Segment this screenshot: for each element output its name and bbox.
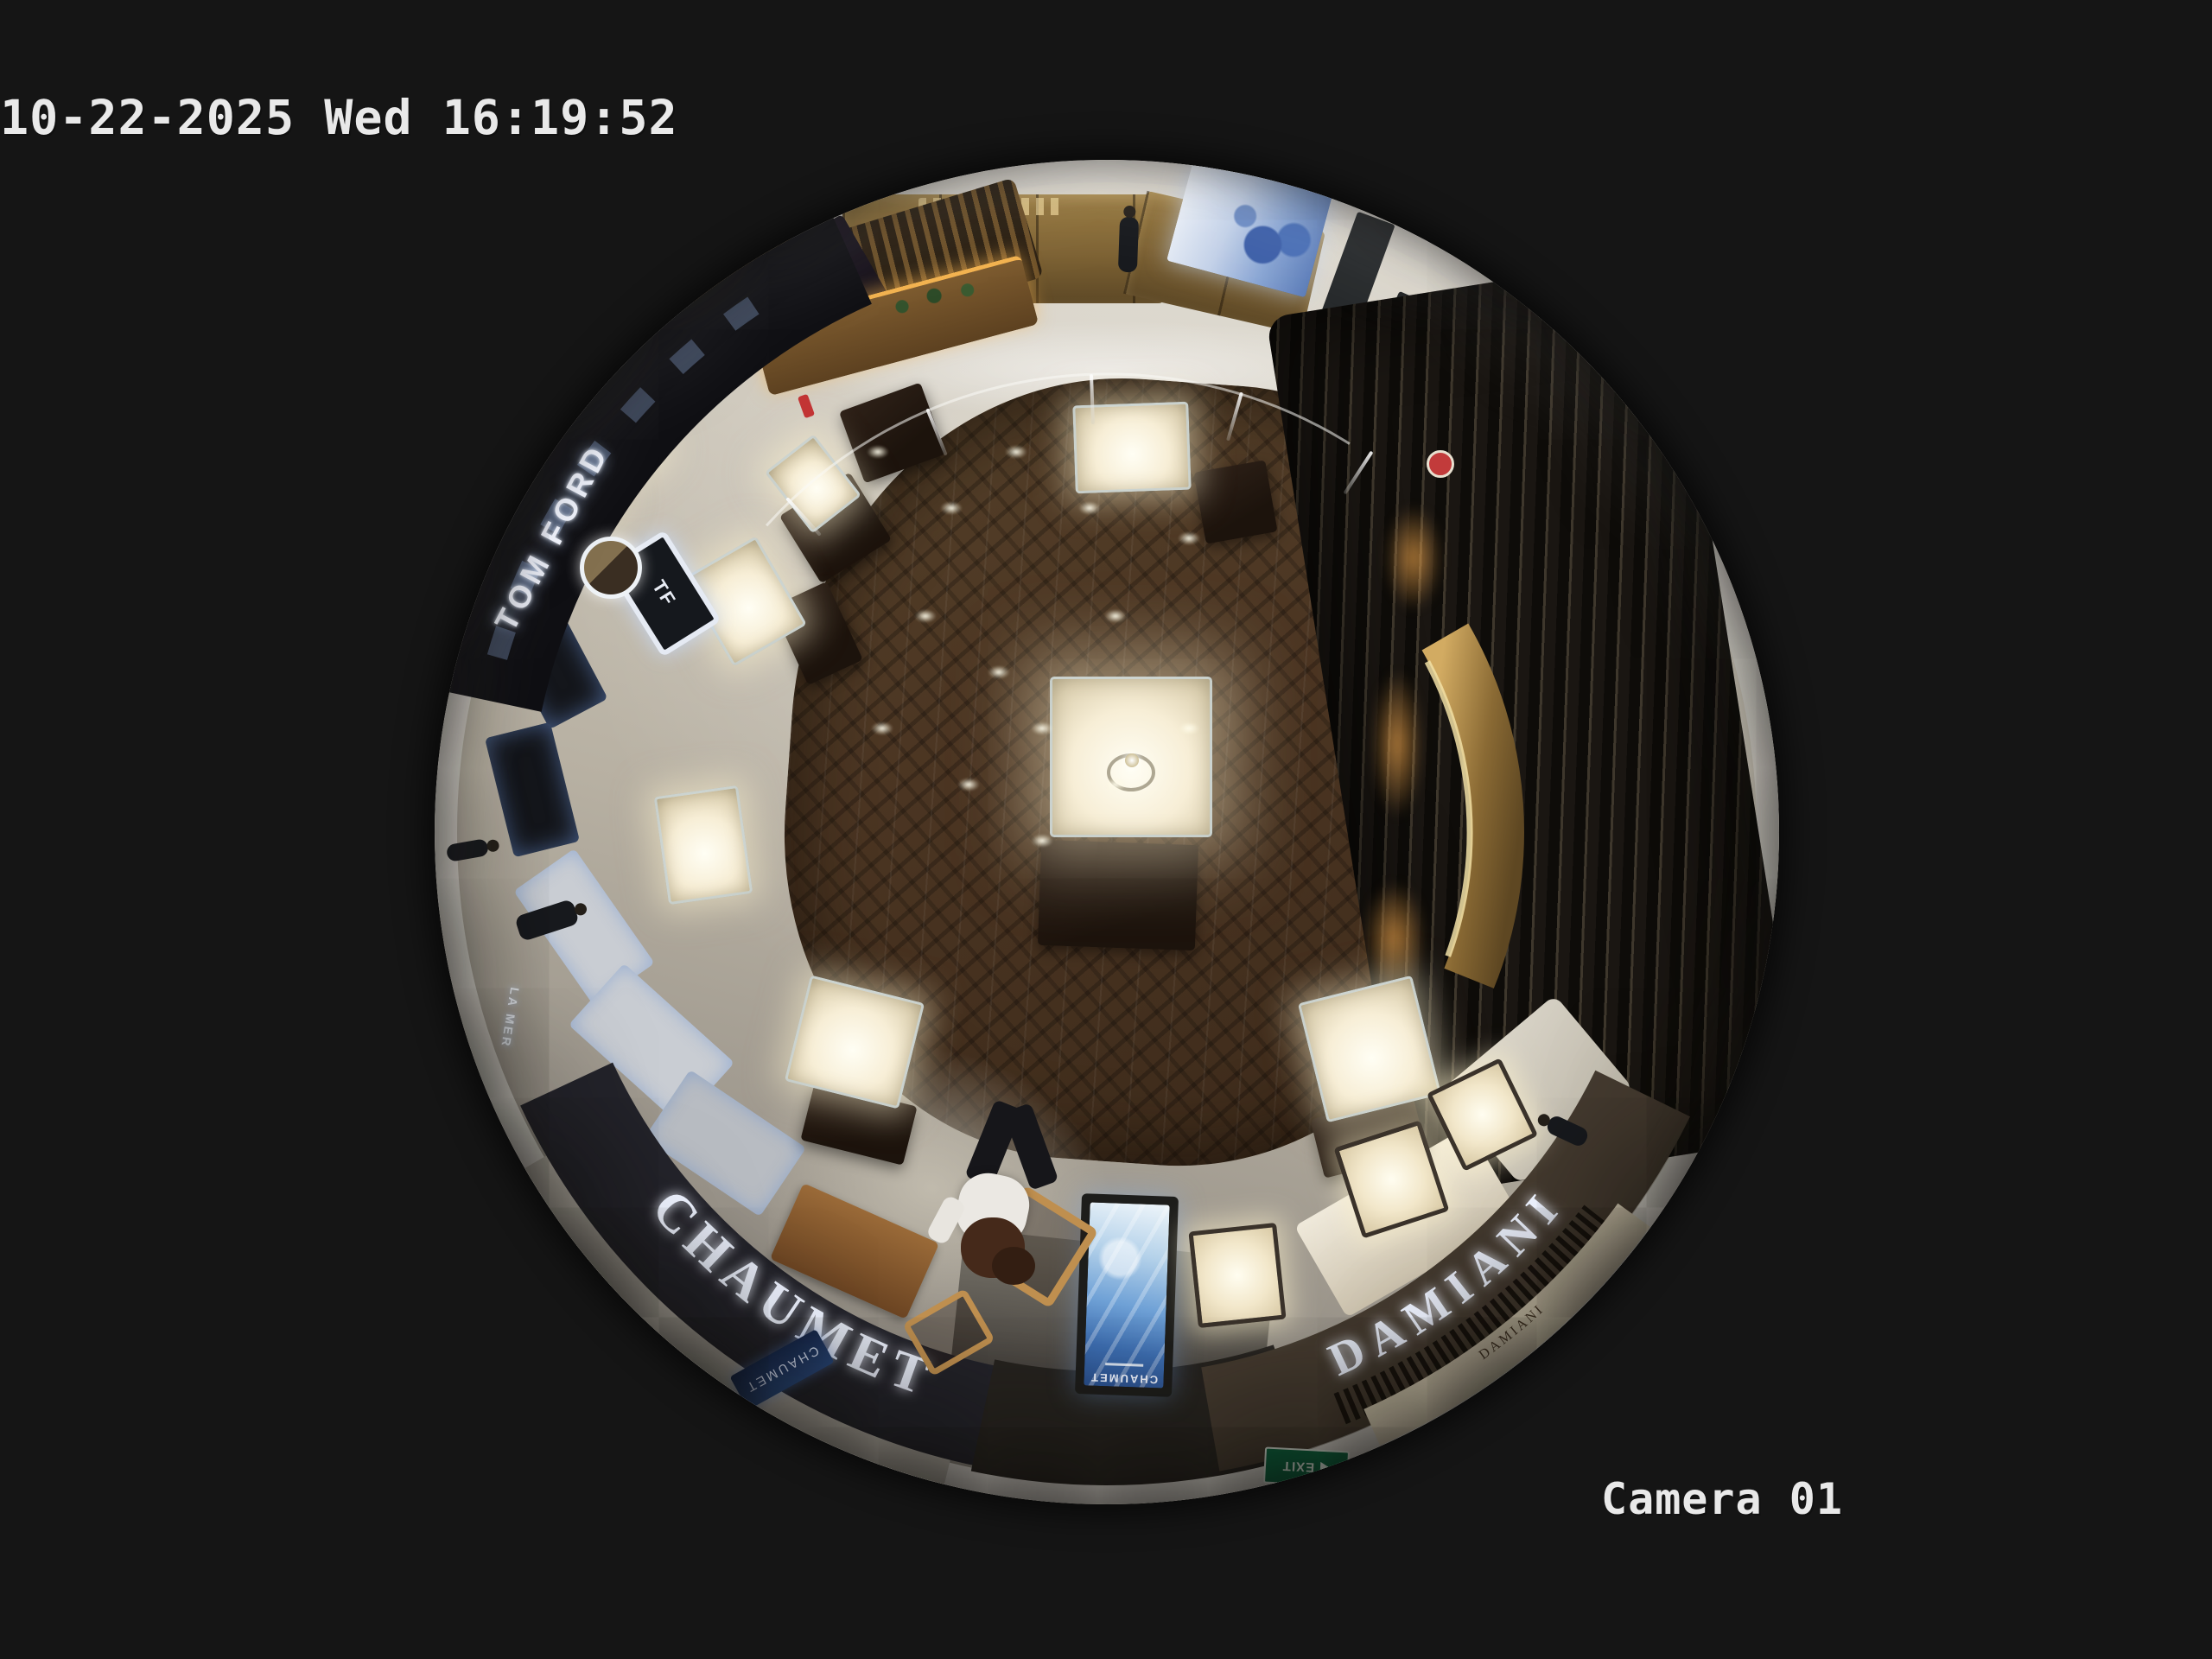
totem-screen (1084, 1202, 1169, 1388)
circular-mirror (580, 537, 642, 599)
jewelry-showcase (1188, 1223, 1286, 1328)
camera-label: Camera 01 (1601, 1474, 1843, 1524)
fisheye-view: CHAUMET DAMIANI DAMIANI TOM FORD TF LA M… (435, 160, 1779, 1504)
exit-arrow-icon (1320, 1462, 1332, 1475)
person-walking-bottom (931, 1102, 1078, 1285)
tf-monogram: TF (647, 576, 680, 611)
exit-label: EXIT (1281, 1459, 1314, 1475)
person-walking-top (1118, 217, 1139, 273)
timestamp-overlay: 10-22-2025 Wed 16:19:52 (0, 90, 678, 145)
digital-totem: CHAUMET (1075, 1193, 1179, 1397)
exit-sign: EXIT (1263, 1446, 1350, 1487)
cctv-frame: CHAUMET DAMIANI DAMIANI TOM FORD TF LA M… (0, 0, 2212, 1659)
person-hair (992, 1247, 1035, 1285)
